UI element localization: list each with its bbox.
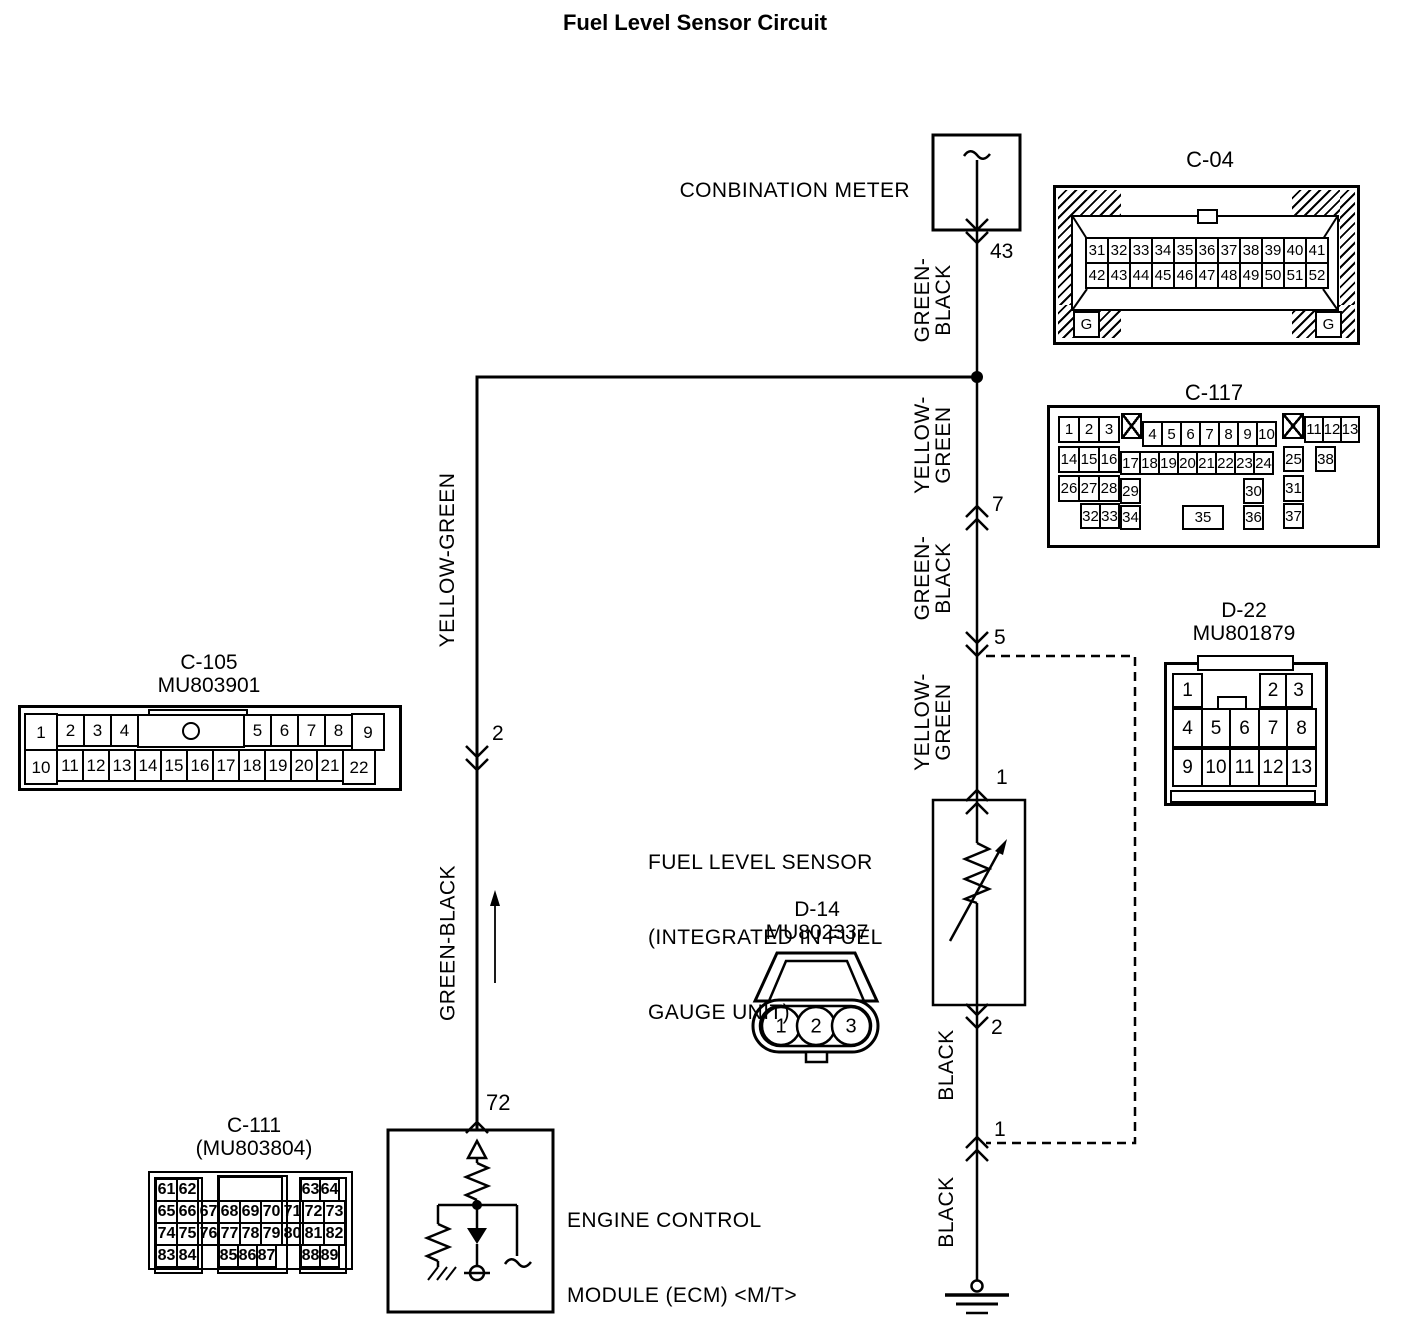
pin-cell: 79 — [260, 1222, 283, 1246]
c111-row: 8384 — [155, 1244, 199, 1268]
pin-cell: 69 — [239, 1200, 262, 1224]
pin-cell: 38 — [1239, 237, 1263, 264]
pin-cell: 1 — [1172, 673, 1203, 708]
pin-cell: 27 — [1078, 475, 1100, 502]
wiring-diagram-canvas: Fuel Level Sensor Circuit CONBINATION ME… — [0, 0, 1408, 1332]
pin-cell: 31 — [1085, 237, 1109, 264]
pin-cell: 8 — [1218, 421, 1239, 447]
c105-row: 1234 — [24, 714, 139, 751]
pin-cell: 18 — [1139, 451, 1160, 475]
pin-cell: 34 — [1151, 237, 1175, 264]
wire-label-green-black-2: GREEN-BLACK — [912, 513, 954, 643]
c105-row: 10111213141516171819202122 — [24, 749, 376, 785]
pin-cell: 66 — [176, 1200, 199, 1224]
pin-cell: 63 — [300, 1178, 321, 1202]
c111-row: 6364 — [300, 1178, 340, 1202]
pin-cell: 85 — [218, 1244, 239, 1268]
pin-cell: 7 — [297, 714, 326, 747]
pin-cell: 35 — [1182, 505, 1224, 530]
fuel-sensor-box — [933, 800, 1025, 1005]
junction-dot — [971, 371, 983, 383]
pin-cell: 6 — [270, 714, 299, 747]
pin-callout-5: 5 — [994, 626, 1006, 650]
pin-cell: 2 — [1078, 416, 1100, 443]
wire-label-yellow-green-1: YELLOW-GREEN — [912, 380, 954, 510]
c117-row: 141516 — [1058, 446, 1120, 473]
pin-cell: 84 — [176, 1244, 199, 1268]
pin-cell: 6 — [1180, 421, 1201, 447]
pin-cell: 17 — [212, 749, 240, 782]
pin-cell: 28 — [1098, 475, 1120, 502]
pin-cell: 70 — [260, 1200, 283, 1224]
pin-cell: 82 — [323, 1222, 346, 1246]
pin-cell: 26 — [1058, 475, 1080, 502]
pin-cell: 37 — [1217, 237, 1241, 264]
pin-cell: 4 — [1172, 708, 1203, 748]
pin-cell: 83 — [155, 1244, 178, 1268]
blocked-pin-cell — [1282, 413, 1304, 439]
pin-cell: 72 — [302, 1200, 325, 1224]
pin-cell: 67 — [197, 1200, 220, 1224]
c117-title: C-117 — [1154, 381, 1274, 404]
pin-callout-72: 72 — [486, 1090, 510, 1116]
pin-cell: 18 — [238, 749, 266, 782]
pin-cell: 15 — [1078, 446, 1100, 473]
c111-blank-cell — [218, 1176, 283, 1202]
c105-title: C-105 MU803901 — [119, 651, 299, 697]
pin-cell: 81 — [302, 1222, 325, 1246]
pin-cell: 78 — [239, 1222, 262, 1246]
pin-cell: 21 — [1196, 451, 1217, 475]
c117-row: 1718192021222324 — [1120, 451, 1274, 475]
pin-cell: 32 — [1080, 503, 1101, 529]
connector-c111: 6162 6364 656667686970717273 74757677787… — [148, 1171, 353, 1270]
pin-cell: 11 — [1304, 416, 1324, 443]
pin-cell: 13 — [1340, 416, 1360, 443]
c105-row: 56789 — [243, 714, 385, 751]
d14-pin-2: 2 — [810, 1016, 821, 1039]
d22-row: 23 — [1259, 673, 1313, 708]
wire-label-green-black-1: GREEN-BLACK — [912, 235, 954, 365]
pin-cell: 7 — [1258, 708, 1289, 748]
blocked-pin-cell — [1121, 413, 1142, 439]
pin-cell: 20 — [290, 749, 318, 782]
pin-cell: 9 — [1237, 421, 1258, 447]
pin-cell: 86 — [237, 1244, 258, 1268]
pin-cell: 22 — [1215, 451, 1236, 475]
d22-title: D-22 MU801879 — [1164, 599, 1324, 645]
pin-cell: 17 — [1120, 451, 1141, 475]
pin-cell: 14 — [1058, 446, 1080, 473]
pin-cell: 49 — [1239, 262, 1263, 289]
pin-cell: 88 — [300, 1244, 321, 1268]
pin-cell: 16 — [1098, 446, 1120, 473]
pin-cell: 45 — [1151, 262, 1175, 289]
d22-bottom-rail — [1170, 790, 1316, 803]
pin-cell: 61 — [155, 1178, 178, 1202]
pin-cell: 10 — [1256, 421, 1277, 447]
pin-cell: 4 — [110, 714, 139, 747]
pin-cell: 25 — [1283, 446, 1304, 472]
c117-row: 3233 — [1080, 503, 1120, 529]
pin-cell: 31 — [1283, 475, 1304, 502]
pin-cell: 2 — [1259, 673, 1287, 708]
pin-cell: 12 — [82, 749, 110, 782]
c117-row: 45678910 — [1142, 421, 1277, 447]
diagram-title: Fuel Level Sensor Circuit — [545, 10, 845, 36]
c105-keyway-cell — [137, 714, 245, 748]
pin-callout-2-left: 2 — [492, 722, 504, 746]
pin-cell: 19 — [264, 749, 292, 782]
pin-cell: 11 — [1229, 748, 1260, 787]
c111-title: C-111 (MU803804) — [154, 1114, 354, 1160]
d22-row: 910111213 — [1172, 748, 1317, 787]
wire-label-yellow-green-left: YELLOW-GREEN — [435, 465, 459, 655]
pin-cell: 76 — [197, 1222, 220, 1246]
c117-row: 25 — [1283, 446, 1304, 472]
pin-cell: 80 — [281, 1222, 304, 1246]
resistor-arrowhead — [995, 839, 1007, 855]
pin-cell: 5 — [243, 714, 272, 747]
keyway-circle — [182, 722, 200, 740]
gauge-unit-dashed-boundary — [986, 656, 1135, 1143]
pin-cell: 39 — [1261, 237, 1285, 264]
pin-cell: 38 — [1315, 446, 1336, 472]
pin-cell: 34 — [1120, 505, 1141, 530]
combination-meter-label: CONBINATION METER — [648, 178, 910, 203]
connector-c117: 123 45678910 111213 141516 1718192021222… — [1047, 405, 1380, 548]
pin-cell: 3 — [1285, 673, 1313, 708]
pin-cell: 13 — [108, 749, 136, 782]
pin-cell: 77 — [218, 1222, 241, 1246]
pin-cell: 71 — [281, 1200, 304, 1224]
c04-pin-row-top: 3132333435363738394041 — [1085, 237, 1329, 264]
connector-c105: 1234 56789 10111213141516171819202122 — [18, 705, 402, 791]
pin-cell: 33 — [1099, 503, 1120, 529]
ecm-internal-circuit — [427, 1141, 531, 1280]
wire-label-black-2: BLACK — [935, 1167, 957, 1257]
pin-cell: 75 — [176, 1222, 199, 1246]
pin-callout-1-ground: 1 — [994, 1118, 1006, 1142]
pin-cell: 64 — [319, 1178, 340, 1202]
pin-callout-2-bottom: 2 — [991, 1016, 1003, 1040]
pin-cell: 1 — [1058, 416, 1080, 443]
connector-c04: 3132333435363738394041 42434445464748495… — [1053, 185, 1360, 345]
gauge-symbol — [964, 151, 990, 159]
wire-label-yellow-green-2: YELLOW-GREEN — [912, 657, 954, 787]
pin-cell: 43 — [1107, 262, 1131, 289]
pin-cell: 35 — [1173, 237, 1197, 264]
pin-cell: 23 — [1234, 451, 1255, 475]
pin-cell: 73 — [323, 1200, 346, 1224]
pin-cell: 33 — [1129, 237, 1153, 264]
pin-cell: 1 — [24, 713, 58, 751]
pin-cell: 41 — [1305, 237, 1329, 264]
pin-cell: 20 — [1177, 451, 1198, 475]
pin-cell: 65 — [155, 1200, 178, 1224]
pin-callout-1-top: 1 — [996, 766, 1008, 790]
d22-row: 45678 — [1172, 708, 1317, 748]
pin-cell: 68 — [218, 1200, 241, 1224]
c111-row: 6162 — [155, 1178, 199, 1202]
pin-cell: 89 — [319, 1244, 340, 1268]
c04-ground-cell: G — [1073, 311, 1100, 338]
wire-label-green-black-left: GREEN-BLACK — [436, 856, 460, 1031]
pin-cell: 8 — [324, 714, 353, 747]
pin-cell: 22 — [342, 749, 376, 785]
pin-cell: 5 — [1161, 421, 1182, 447]
c04-pin-row-bottom: 4243444546474849505152 — [1085, 262, 1329, 289]
d22-row: 1 — [1172, 673, 1203, 708]
pin-cell: 36 — [1195, 237, 1219, 264]
c111-row: 747576777879808182 — [155, 1222, 346, 1246]
c111-row: 656667686970717273 — [155, 1200, 346, 1224]
pin-cell: 12 — [1322, 416, 1342, 443]
connector-d22: 1 23 45678 910111213 — [1164, 662, 1328, 806]
pin-cell: 7 — [1199, 421, 1220, 447]
pin-cell: 46 — [1173, 262, 1197, 289]
pin-cell: 21 — [316, 749, 344, 782]
pin-cell: 12 — [1258, 748, 1289, 787]
pin-callout-43: 43 — [990, 240, 1013, 264]
d14-pin-1: 1 — [775, 1016, 786, 1039]
c117-row: 111213 — [1304, 416, 1360, 443]
d14-pin-3: 3 — [845, 1016, 856, 1039]
pin-cell: 32 — [1107, 237, 1131, 264]
pin-cell: 24 — [1253, 451, 1274, 475]
pin-cell: 44 — [1129, 262, 1153, 289]
pin-cell: 50 — [1261, 262, 1285, 289]
pin-cell: 16 — [186, 749, 214, 782]
pin-cell: 10 — [1201, 748, 1232, 787]
pin-cell: 47 — [1195, 262, 1219, 289]
pin-cell: 42 — [1085, 262, 1109, 289]
pin-cell: 40 — [1283, 237, 1307, 264]
pin-cell: 3 — [1098, 416, 1120, 443]
wire-label-black-1: BLACK — [935, 1020, 957, 1110]
pin-cell: 52 — [1305, 262, 1329, 289]
pin-cell: 48 — [1217, 262, 1241, 289]
pin-cell: 9 — [1172, 748, 1203, 787]
pin-cell: 30 — [1243, 478, 1264, 504]
c117-row: 123 — [1058, 416, 1120, 443]
pin-cell: 6 — [1229, 708, 1260, 748]
pin-cell: 4 — [1142, 421, 1163, 447]
pin-cell: 14 — [134, 749, 162, 782]
c117-row: 262728 — [1058, 475, 1120, 502]
pin-cell: 13 — [1286, 748, 1317, 787]
pin-cell: 15 — [160, 749, 188, 782]
pin-cell: 36 — [1243, 505, 1264, 530]
pin-cell: 2 — [56, 714, 85, 747]
c111-row: 858687 — [218, 1244, 277, 1268]
pin-cell: 74 — [155, 1222, 178, 1246]
d14-title: D-14 MU802337 — [717, 898, 917, 944]
pin-callout-7: 7 — [992, 493, 1004, 517]
pin-cell: 37 — [1283, 503, 1304, 529]
c04-ground-cell: G — [1315, 311, 1342, 338]
pin-cell: 19 — [1158, 451, 1179, 475]
c04-title: C-04 — [1150, 148, 1270, 171]
c111-row: 8889 — [300, 1244, 340, 1268]
pin-cell: 5 — [1201, 708, 1232, 748]
pin-cell: 9 — [351, 713, 385, 751]
ground-terminal — [972, 1281, 983, 1292]
pin-cell: 3 — [83, 714, 112, 747]
pin-cell: 8 — [1286, 708, 1317, 748]
pin-cell: 62 — [176, 1178, 199, 1202]
ecm-label: ENGINE CONTROL MODULE (ECM) <M/T> OR POW… — [567, 1158, 825, 1332]
d22-index-tab — [1197, 655, 1294, 671]
pin-cell: 11 — [56, 749, 84, 782]
pin-cell: 29 — [1120, 478, 1141, 504]
pin-cell: 10 — [24, 749, 58, 785]
pin-cell: 51 — [1283, 262, 1307, 289]
c04-index-tab — [1197, 209, 1218, 224]
pin-cell: 87 — [256, 1244, 277, 1268]
